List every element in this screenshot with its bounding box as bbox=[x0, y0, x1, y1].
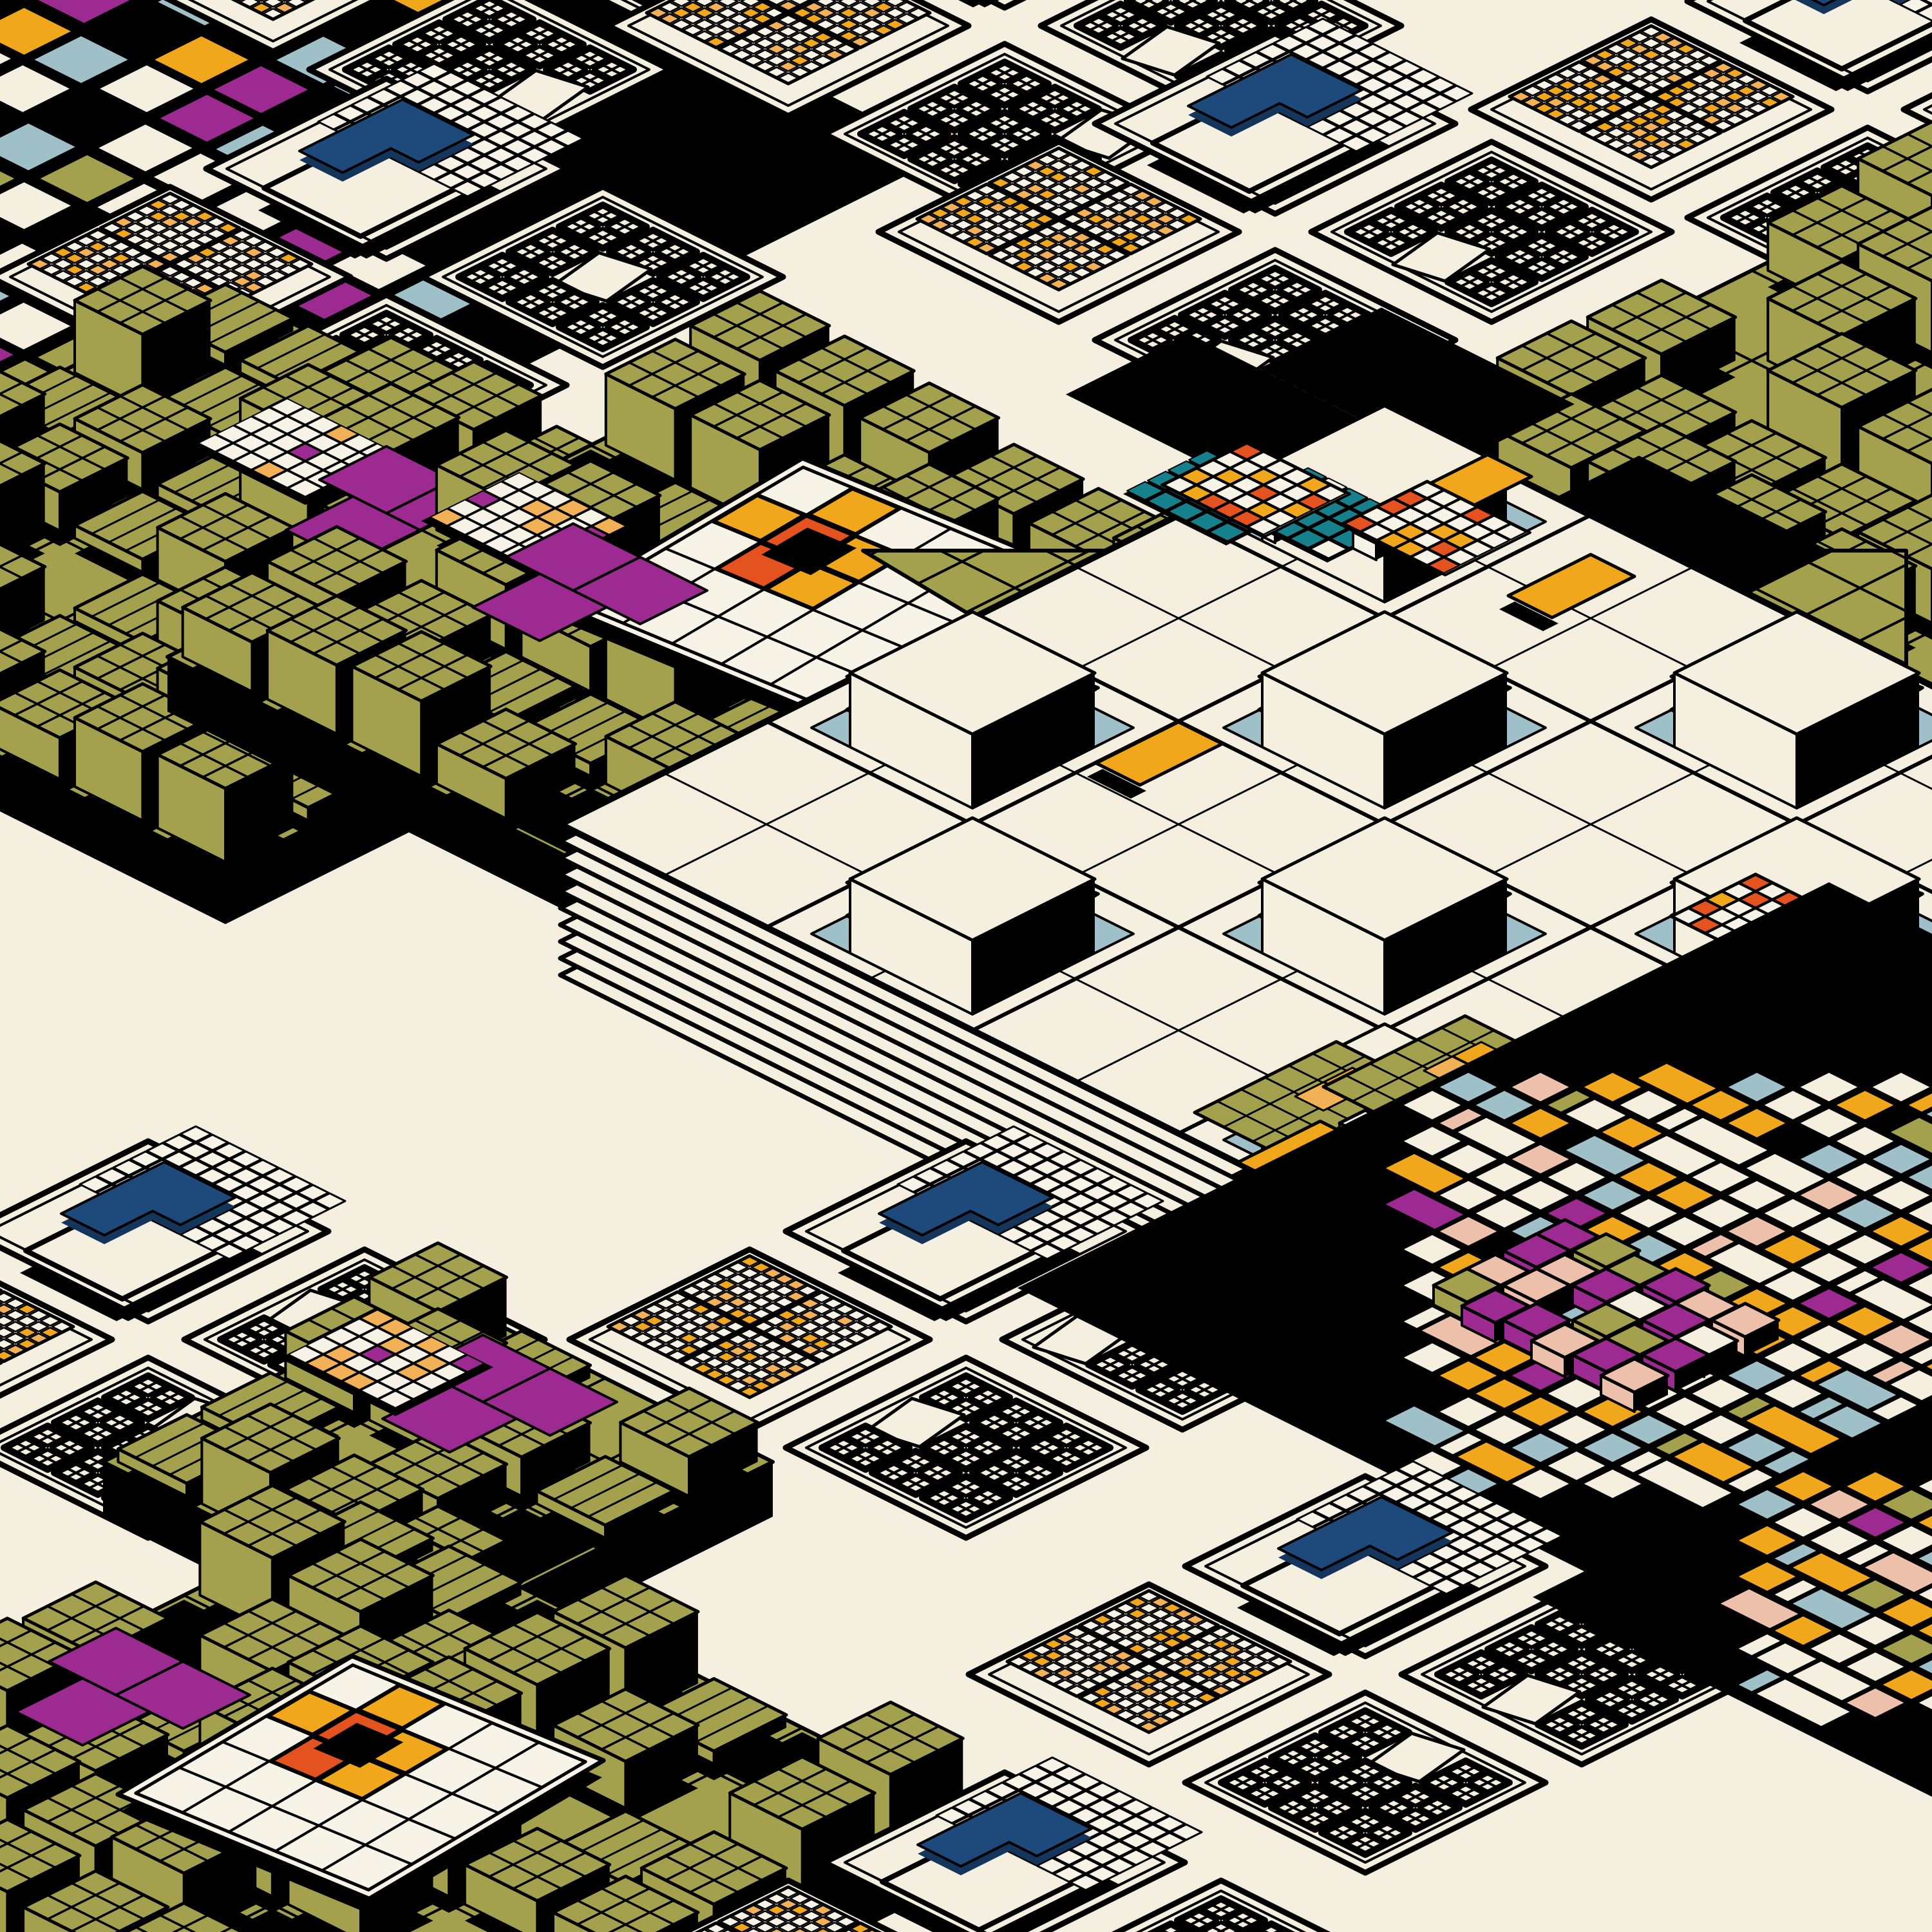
artwork-stage bbox=[0, 0, 1932, 1932]
isometric-city-artwork bbox=[0, 0, 1932, 1932]
